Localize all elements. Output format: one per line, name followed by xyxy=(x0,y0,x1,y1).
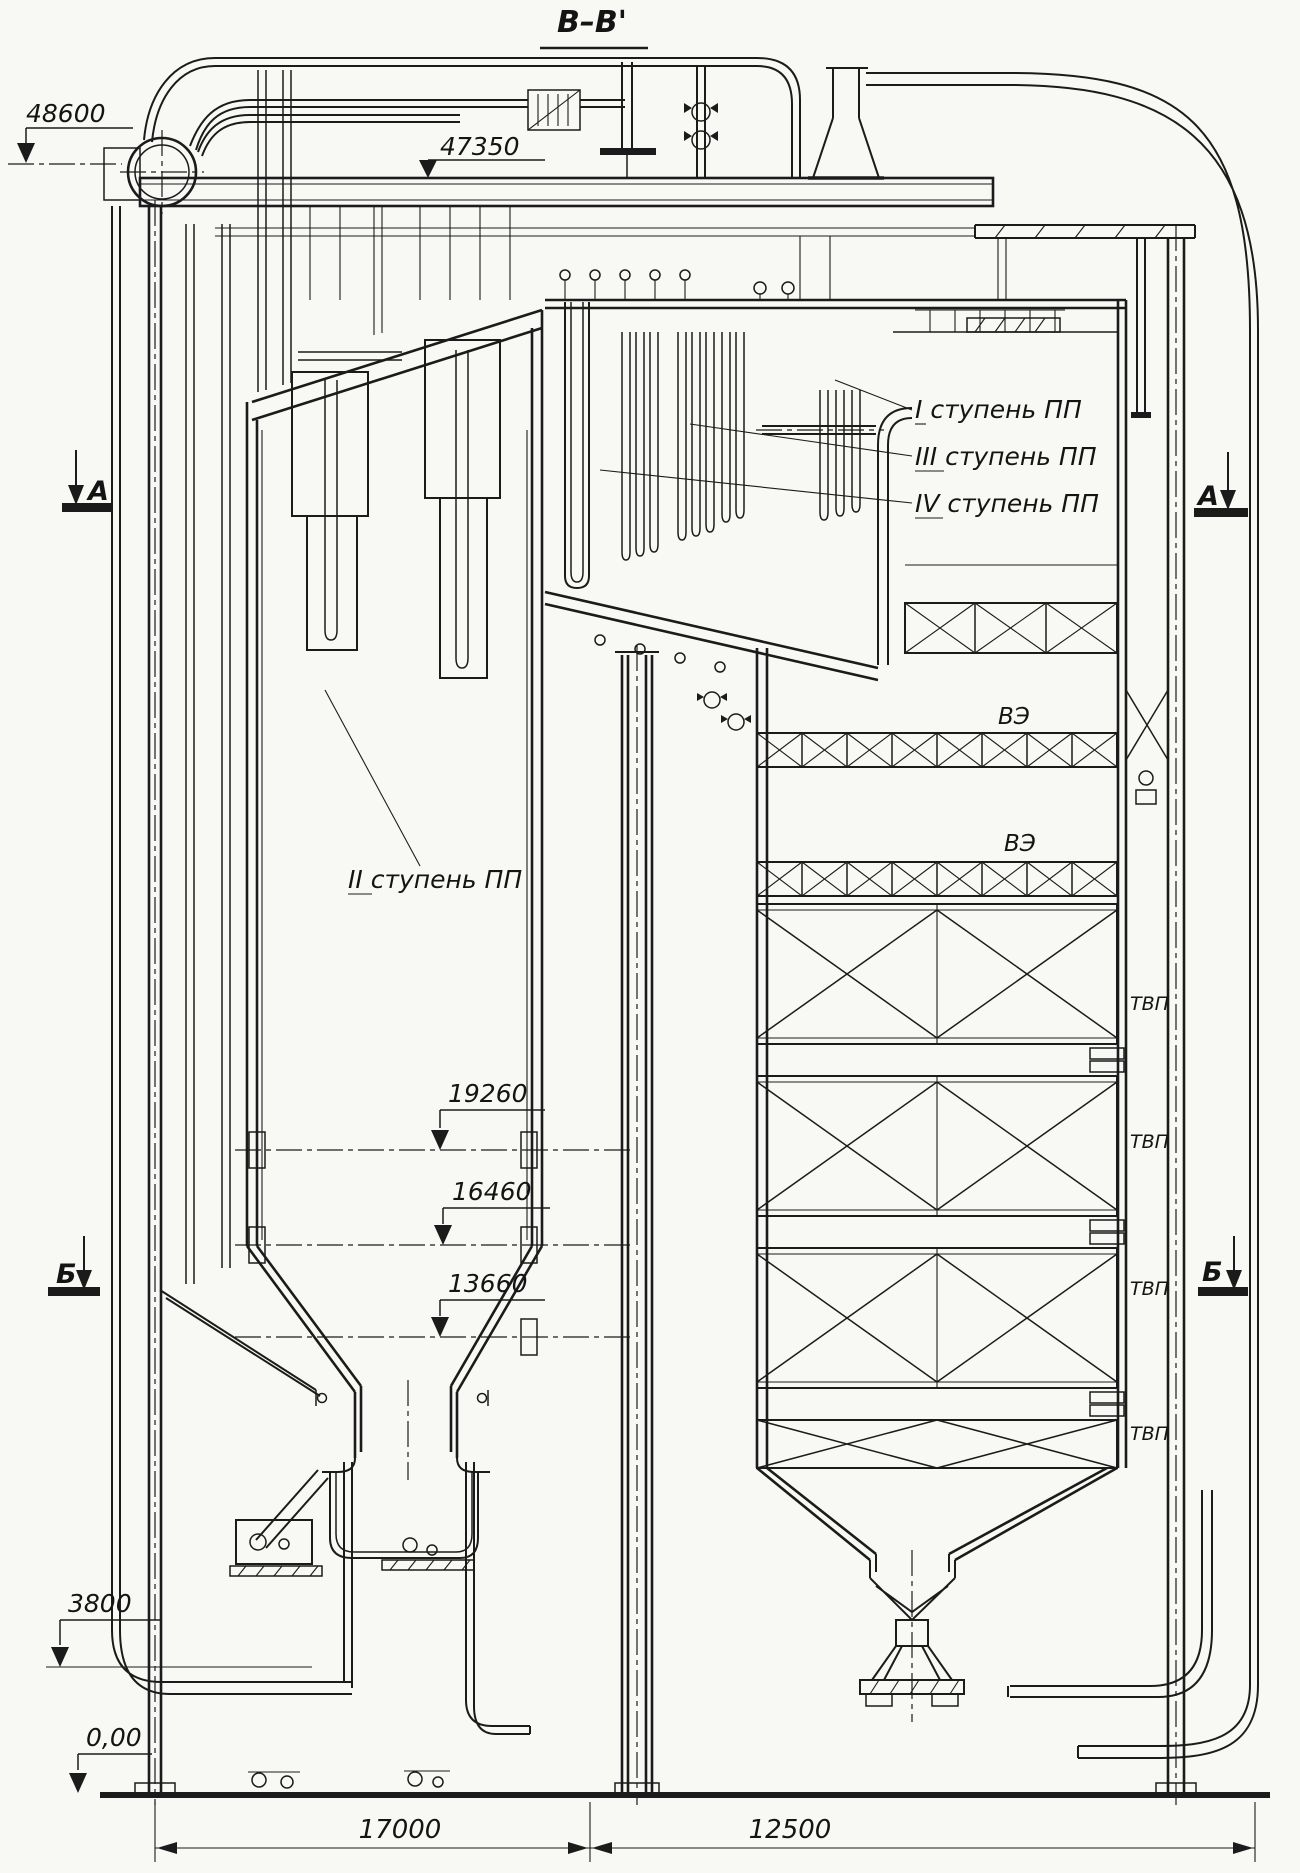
leader-stage2 xyxy=(325,690,420,866)
elevation-value: 48600 xyxy=(26,99,106,128)
section-letter: Б xyxy=(1202,1257,1223,1288)
shaft-hopper xyxy=(757,1468,1117,1722)
elevation-marks: 48600 47350 19260 16460 13660 xyxy=(8,99,632,1793)
section-markers: А А Б Б xyxy=(48,450,1248,1296)
label-air-heater-2: ТВП xyxy=(1130,1131,1169,1153)
title-text: В–В' xyxy=(557,5,627,40)
superheater-stage2-platens xyxy=(292,340,500,678)
elevation-value: 16460 xyxy=(452,1177,532,1206)
section-marker-a-left: А xyxy=(62,450,112,512)
label-stage2: II ступень ПП xyxy=(325,690,522,894)
stage-name: ступень ПП xyxy=(363,865,523,894)
elevation-16460: 16460 xyxy=(235,1177,632,1245)
section-marker-b-right: Б xyxy=(1198,1236,1248,1296)
ceiling-girder xyxy=(140,178,993,236)
section-letter: Б xyxy=(56,1259,77,1290)
drawing-sheet: 48600 47350 19260 16460 13660 xyxy=(0,0,1300,1873)
label-economizer-lower: ВЭ xyxy=(1004,831,1036,857)
air-heater-cube-2 xyxy=(757,1076,1117,1216)
pump-icons xyxy=(248,1771,450,1788)
svg-text:III ступень ПП: III ступень ПП xyxy=(915,442,1097,471)
section-marker-b-left: Б xyxy=(48,1236,100,1296)
leader-stage4 xyxy=(600,470,912,503)
section-letter: А xyxy=(1196,481,1219,512)
label-air-heater-3: ТВП xyxy=(1130,1278,1169,1300)
svg-text:II ступень ПП: II ступень ПП xyxy=(348,865,522,894)
stage-numeral: I xyxy=(915,395,922,424)
stage-name: ступень ПП xyxy=(939,489,1099,518)
elevation-value: 3800 xyxy=(68,1589,132,1618)
svg-text:IV ступень ПП: IV ступень ПП xyxy=(915,489,1099,518)
top-piping xyxy=(144,58,1008,392)
drawing-title: В–В' xyxy=(540,5,648,48)
superheater-duct-platens xyxy=(565,302,860,588)
air-heater-cube-3 xyxy=(757,1248,1117,1388)
stage-numeral: II xyxy=(348,865,363,894)
label-air-heater-4: ТВП xyxy=(1130,1423,1169,1445)
section-letter: А xyxy=(86,476,109,507)
label-stage3: III ступень ПП xyxy=(690,424,1097,471)
elevation-48600: 48600 xyxy=(8,99,133,164)
label-economizer-upper: ВЭ xyxy=(998,704,1030,730)
air-heater-cube-4 xyxy=(757,1420,1117,1468)
steam-drum xyxy=(104,130,204,214)
stage-numeral: IV xyxy=(915,489,941,518)
hanger-row-icons xyxy=(560,270,794,300)
elevation-13660: 13660 xyxy=(235,1269,632,1337)
elevation-value: 13660 xyxy=(448,1269,528,1298)
stage-name: ступень ПП xyxy=(922,395,1082,424)
dimension-span-left: 17000 xyxy=(359,1815,442,1845)
svg-text:I ступень ПП: I ступень ПП xyxy=(915,395,1082,424)
slag-removal-equipment xyxy=(230,1462,530,1788)
elevation-value: 0,00 xyxy=(86,1723,142,1752)
economizer-band-3 xyxy=(757,862,1117,896)
label-stage1: I ступень ПП xyxy=(835,380,1082,424)
bottom-dimensions: 17000 12500 xyxy=(155,1802,1255,1862)
label-stage4: IV ступень ПП xyxy=(600,470,1099,518)
elevation-value: 19260 xyxy=(448,1079,528,1108)
economizer-band-2 xyxy=(757,733,1117,767)
elevation-47350: 47350 xyxy=(419,132,545,178)
stage-numeral: III xyxy=(915,442,937,471)
section-marker-a-right: А xyxy=(1194,452,1248,517)
label-air-heater-1: ТВП xyxy=(1130,993,1169,1015)
economizer-band-1 xyxy=(905,565,1117,653)
dimension-span-right: 12500 xyxy=(749,1815,832,1845)
hanger-symbols xyxy=(560,270,794,300)
boiler-section-drawing: 48600 47350 19260 16460 13660 xyxy=(0,0,1300,1873)
stage-name: ступень ПП xyxy=(937,442,1097,471)
elevation-value: 47350 xyxy=(440,132,520,161)
air-heater-cube-1 xyxy=(757,904,1117,1044)
elevation-19260: 19260 xyxy=(235,1079,632,1150)
top-right-beam xyxy=(975,225,1195,238)
right-side-piping xyxy=(1008,73,1258,1758)
leader-stage1 xyxy=(835,380,912,410)
elevation-3800: 3800 xyxy=(46,1589,312,1667)
